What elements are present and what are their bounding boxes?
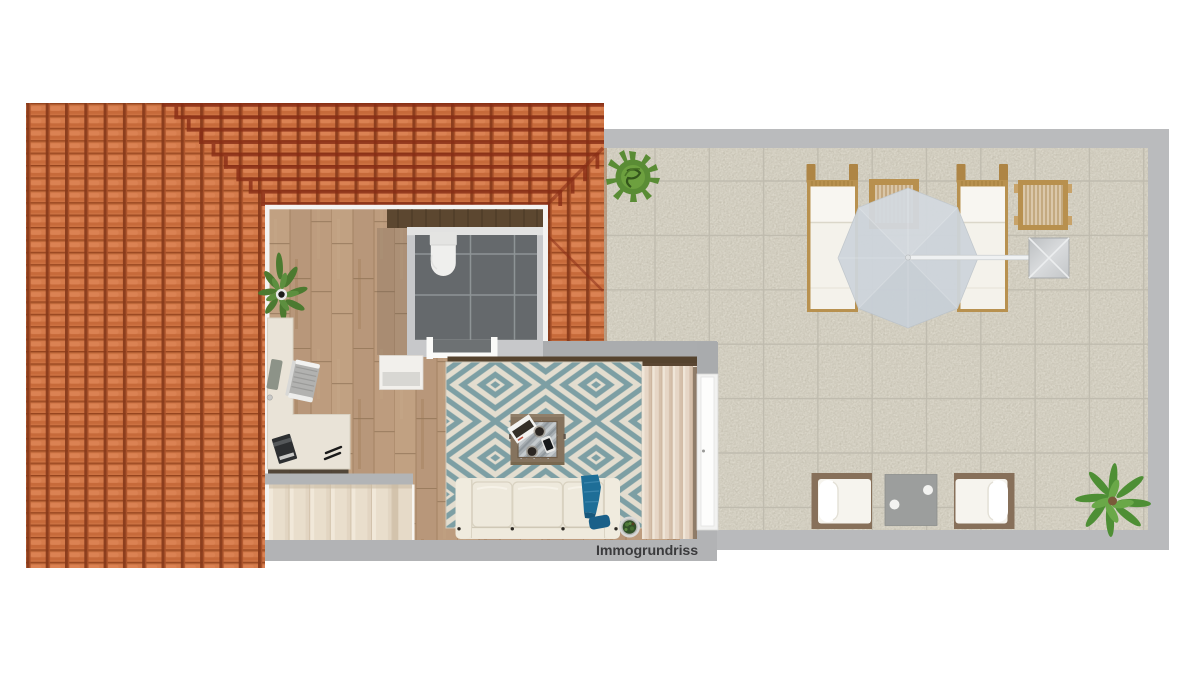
svg-text:Immogrundriss: Immogrundriss xyxy=(596,543,698,559)
